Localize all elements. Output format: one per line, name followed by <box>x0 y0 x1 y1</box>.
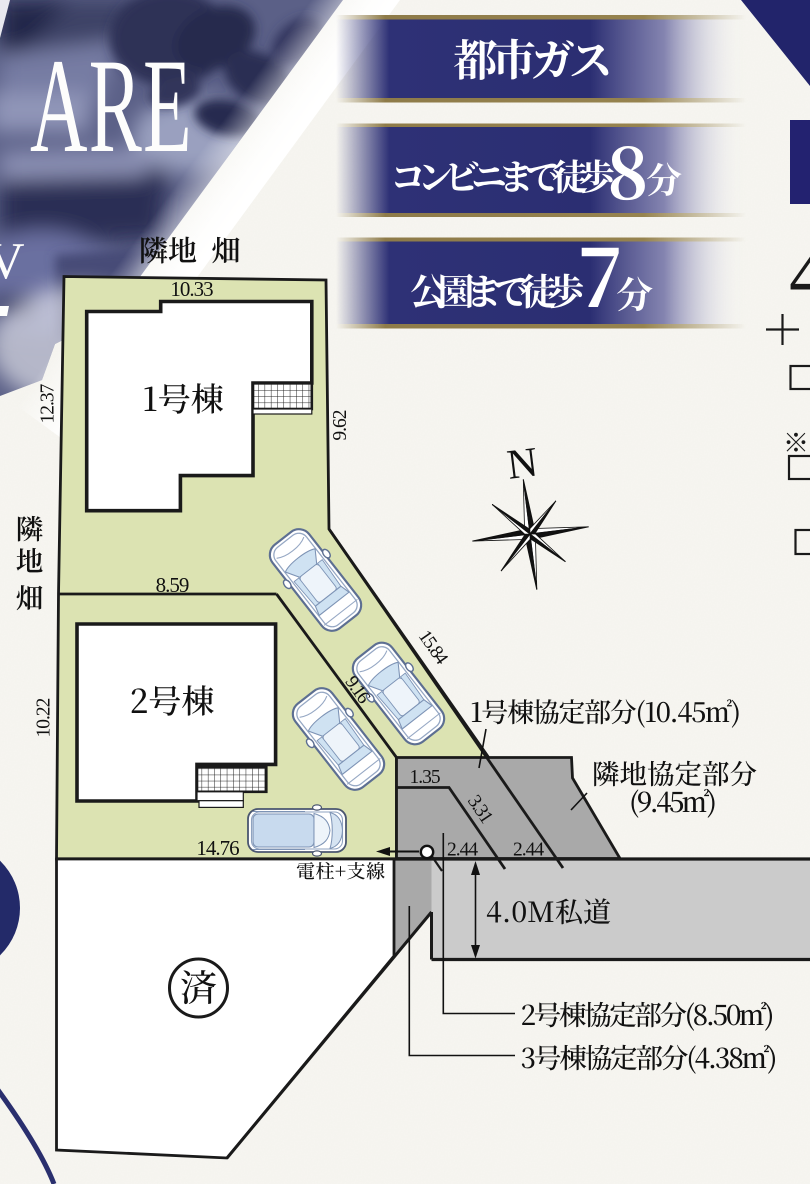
svg-text:2.44: 2.44 <box>447 840 478 861</box>
svg-text:8.59: 8.59 <box>156 573 189 597</box>
svg-text:14.76: 14.76 <box>196 836 239 860</box>
svg-text:9.62: 9.62 <box>330 410 351 440</box>
svg-text:1.35: 1.35 <box>409 767 439 788</box>
svg-text:ARE: ARE <box>30 30 193 180</box>
svg-text:V: V <box>0 233 25 290</box>
svg-text:10.33: 10.33 <box>170 277 213 301</box>
svg-text:N: N <box>505 439 541 488</box>
svg-text:4: 4 <box>789 231 810 319</box>
svg-text:2.44: 2.44 <box>513 840 544 861</box>
svg-text:12.37: 12.37 <box>38 383 59 423</box>
svg-text:10.22: 10.22 <box>34 698 55 737</box>
